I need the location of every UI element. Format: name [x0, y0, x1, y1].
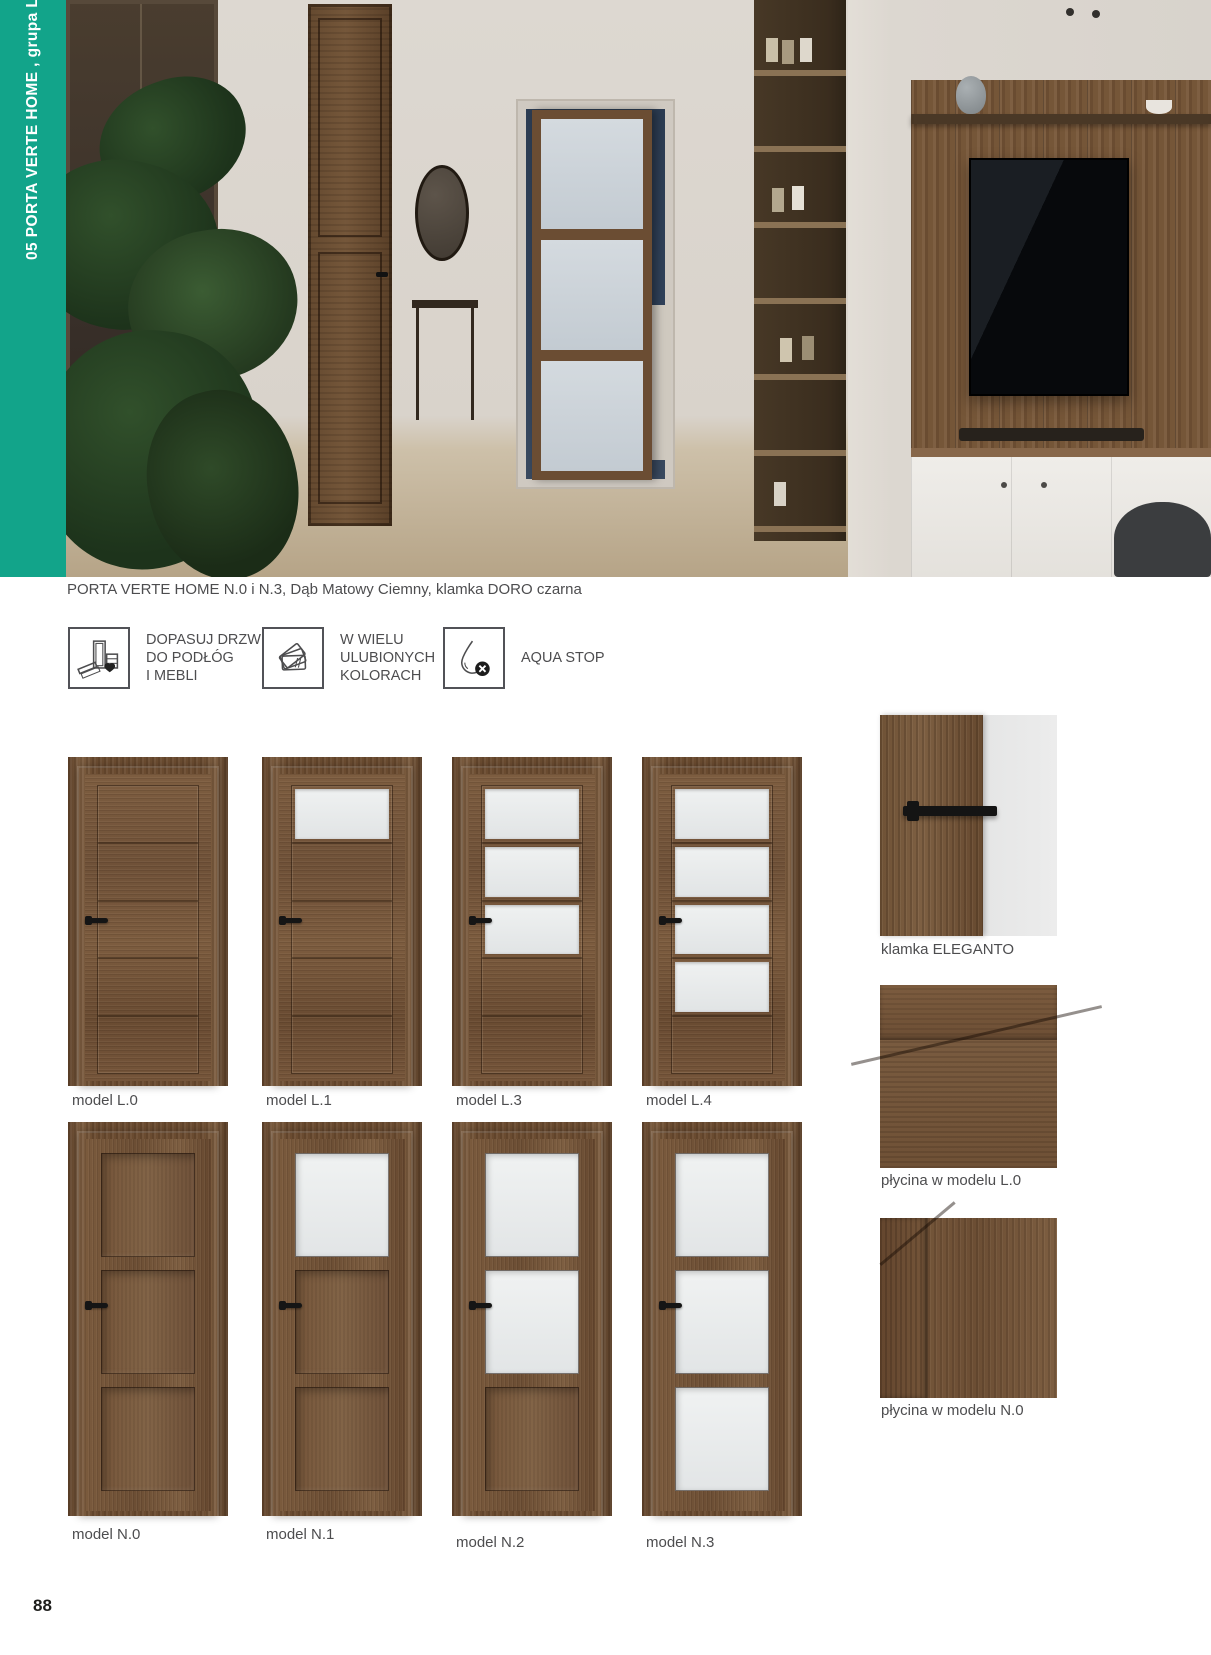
hero-books: [766, 38, 778, 62]
panel-l0-label: płycina w modelu L.0: [881, 1172, 1021, 1189]
door-glass-panel: [675, 1270, 769, 1374]
handle-photo-wood-side: [880, 715, 983, 936]
door-figure-model-n-1: [262, 1122, 422, 1516]
door-glass-section: [292, 786, 392, 844]
door-wood-section: [292, 959, 392, 1017]
hero-plant: [66, 60, 338, 577]
door-handle-icon: [279, 1303, 302, 1308]
hero-wall-hooks: [1066, 8, 1074, 16]
door-wood-section: [98, 786, 198, 844]
door-figure-model-l-0: [68, 757, 228, 1086]
door-panel-area: [482, 786, 582, 1073]
door-wood-section: [98, 959, 198, 1017]
door-leaf: [659, 774, 785, 1081]
feature-aqua-stop: AQUA STOP: [443, 627, 605, 689]
door-leaf: [469, 774, 595, 1081]
hero-door-glass-pane: [541, 361, 643, 471]
door-figure-model-n-3: [642, 1122, 802, 1516]
door-figure-model-l-3: [452, 757, 612, 1086]
feature-label: AQUA STOP: [521, 649, 605, 667]
door-panel-area: [292, 786, 392, 1073]
door-glass-panel: [485, 1270, 579, 1374]
door-panel-area: [101, 1153, 195, 1491]
door-handle-icon: [469, 1303, 492, 1308]
hero-caption: PORTA VERTE HOME N.0 i N.3, Dąb Matowy C…: [67, 581, 582, 598]
hero-cabinet-knobs: [1001, 482, 1007, 488]
door-leaf: [469, 1139, 595, 1511]
section-sidebar: 05 PORTA VERTE HOME , grupa L i N: [0, 0, 66, 577]
panel-n0-label: płycina w modelu N.0: [881, 1402, 1024, 1419]
model-label: model L.0: [72, 1092, 138, 1109]
feature-match-doors: DOPASUJ DRZWI DO PODŁÓG I MEBLI: [68, 627, 265, 689]
door-wood-section: [672, 1017, 772, 1073]
handle-lever-icon: [903, 806, 997, 816]
panel-l0-photo: [880, 985, 1057, 1168]
door-wood-section: [292, 902, 392, 960]
door-wood-section: [482, 1017, 582, 1073]
panel-n0-photo: [880, 1218, 1057, 1398]
door-glass-panel: [485, 1153, 579, 1257]
handle-eleganto-photo: [880, 715, 1057, 936]
section-sidebar-label: 05 PORTA VERTE HOME , grupa L i N: [0, 0, 66, 577]
door-glass-panel: [295, 1153, 389, 1257]
catalog-page: 05 PORTA VERTE HOME , grupa L i N: [0, 0, 1211, 1655]
door-panel-area: [98, 786, 198, 1073]
hero-bowl: [1146, 100, 1172, 114]
hero-open-glazed-door: [532, 110, 652, 480]
door-glass-section: [672, 902, 772, 960]
door-figure-model-n-2: [452, 1122, 612, 1516]
door-glass-section: [672, 844, 772, 902]
feature-label: W WIELU ULUBIONYCH KOLORACH: [340, 631, 435, 685]
door-wood-panel: [295, 1387, 389, 1491]
door-wood-section: [292, 844, 392, 902]
door-glass-section: [482, 844, 582, 902]
hero-left-door-handle: [376, 272, 388, 277]
model-label: model N.1: [266, 1526, 334, 1543]
door-glass-section: [482, 786, 582, 844]
water-drop-stop-icon: [443, 627, 505, 689]
hero-soundbar: [959, 428, 1144, 441]
door-wood-section: [292, 1017, 392, 1073]
hero-bookshelf: [754, 0, 846, 541]
door-wood-panel: [485, 1387, 579, 1491]
door-leaf: [85, 774, 211, 1081]
model-label: model N.3: [646, 1534, 714, 1551]
door-wood-panel: [101, 1387, 195, 1491]
door-glass-section: [482, 902, 582, 960]
door-handle-icon: [469, 918, 492, 923]
hero-tv-screen: [969, 158, 1129, 396]
handle-eleganto-label: klamka ELEGANTO: [881, 941, 1014, 958]
color-swatches-icon: [262, 627, 324, 689]
model-label: model L.4: [646, 1092, 712, 1109]
door-panel-area: [675, 1153, 769, 1491]
door-handle-icon: [659, 1303, 682, 1308]
door-wood-panel: [295, 1270, 389, 1374]
door-leaf: [279, 774, 405, 1081]
door-handle-icon: [279, 918, 302, 923]
hero-door-glass-pane: [541, 119, 643, 229]
hero-round-mirror: [415, 165, 469, 261]
door-wood-section: [98, 1017, 198, 1073]
door-wood-section: [482, 959, 582, 1017]
door-glass-section: [672, 959, 772, 1017]
door-figure-model-n-0: [68, 1122, 228, 1516]
door-panel-area: [295, 1153, 389, 1491]
door-glass-panel: [675, 1153, 769, 1257]
door-and-furniture-heart-icon: [68, 627, 130, 689]
hero-bed-glimpse: [651, 305, 671, 460]
door-leaf: [85, 1139, 211, 1511]
door-glass-panel: [675, 1387, 769, 1491]
door-panel-area: [672, 786, 772, 1073]
page-number: 88: [33, 1596, 52, 1616]
feature-many-colors: W WIELU ULUBIONYCH KOLORACH: [262, 627, 435, 689]
door-glass-section: [672, 786, 772, 844]
door-panel-area: [485, 1153, 579, 1491]
hero-vase: [956, 76, 986, 114]
door-wood-panel: [101, 1153, 195, 1257]
door-leaf: [279, 1139, 405, 1511]
door-handle-icon: [85, 918, 108, 923]
hero-armchair: [1114, 502, 1211, 577]
door-handle-icon: [659, 918, 682, 923]
door-figure-model-l-4: [642, 757, 802, 1086]
door-handle-icon: [85, 1303, 108, 1308]
door-wood-section: [98, 844, 198, 902]
hero-wall-shelf: [911, 114, 1211, 124]
door-wood-section: [98, 902, 198, 960]
model-label: model N.2: [456, 1534, 524, 1551]
door-wood-panel: [101, 1270, 195, 1374]
model-label: model L.3: [456, 1092, 522, 1109]
door-figure-model-l-1: [262, 757, 422, 1086]
hero-photo: [66, 0, 1211, 577]
hero-console-table: [412, 300, 478, 308]
door-leaf: [659, 1139, 785, 1511]
feature-label: DOPASUJ DRZWI DO PODŁÓG I MEBLI: [146, 631, 265, 685]
model-label: model N.0: [72, 1526, 140, 1543]
model-label: model L.1: [266, 1092, 332, 1109]
hero-door-glass-pane: [541, 240, 643, 350]
panel-l0-rail: [880, 985, 1057, 1040]
